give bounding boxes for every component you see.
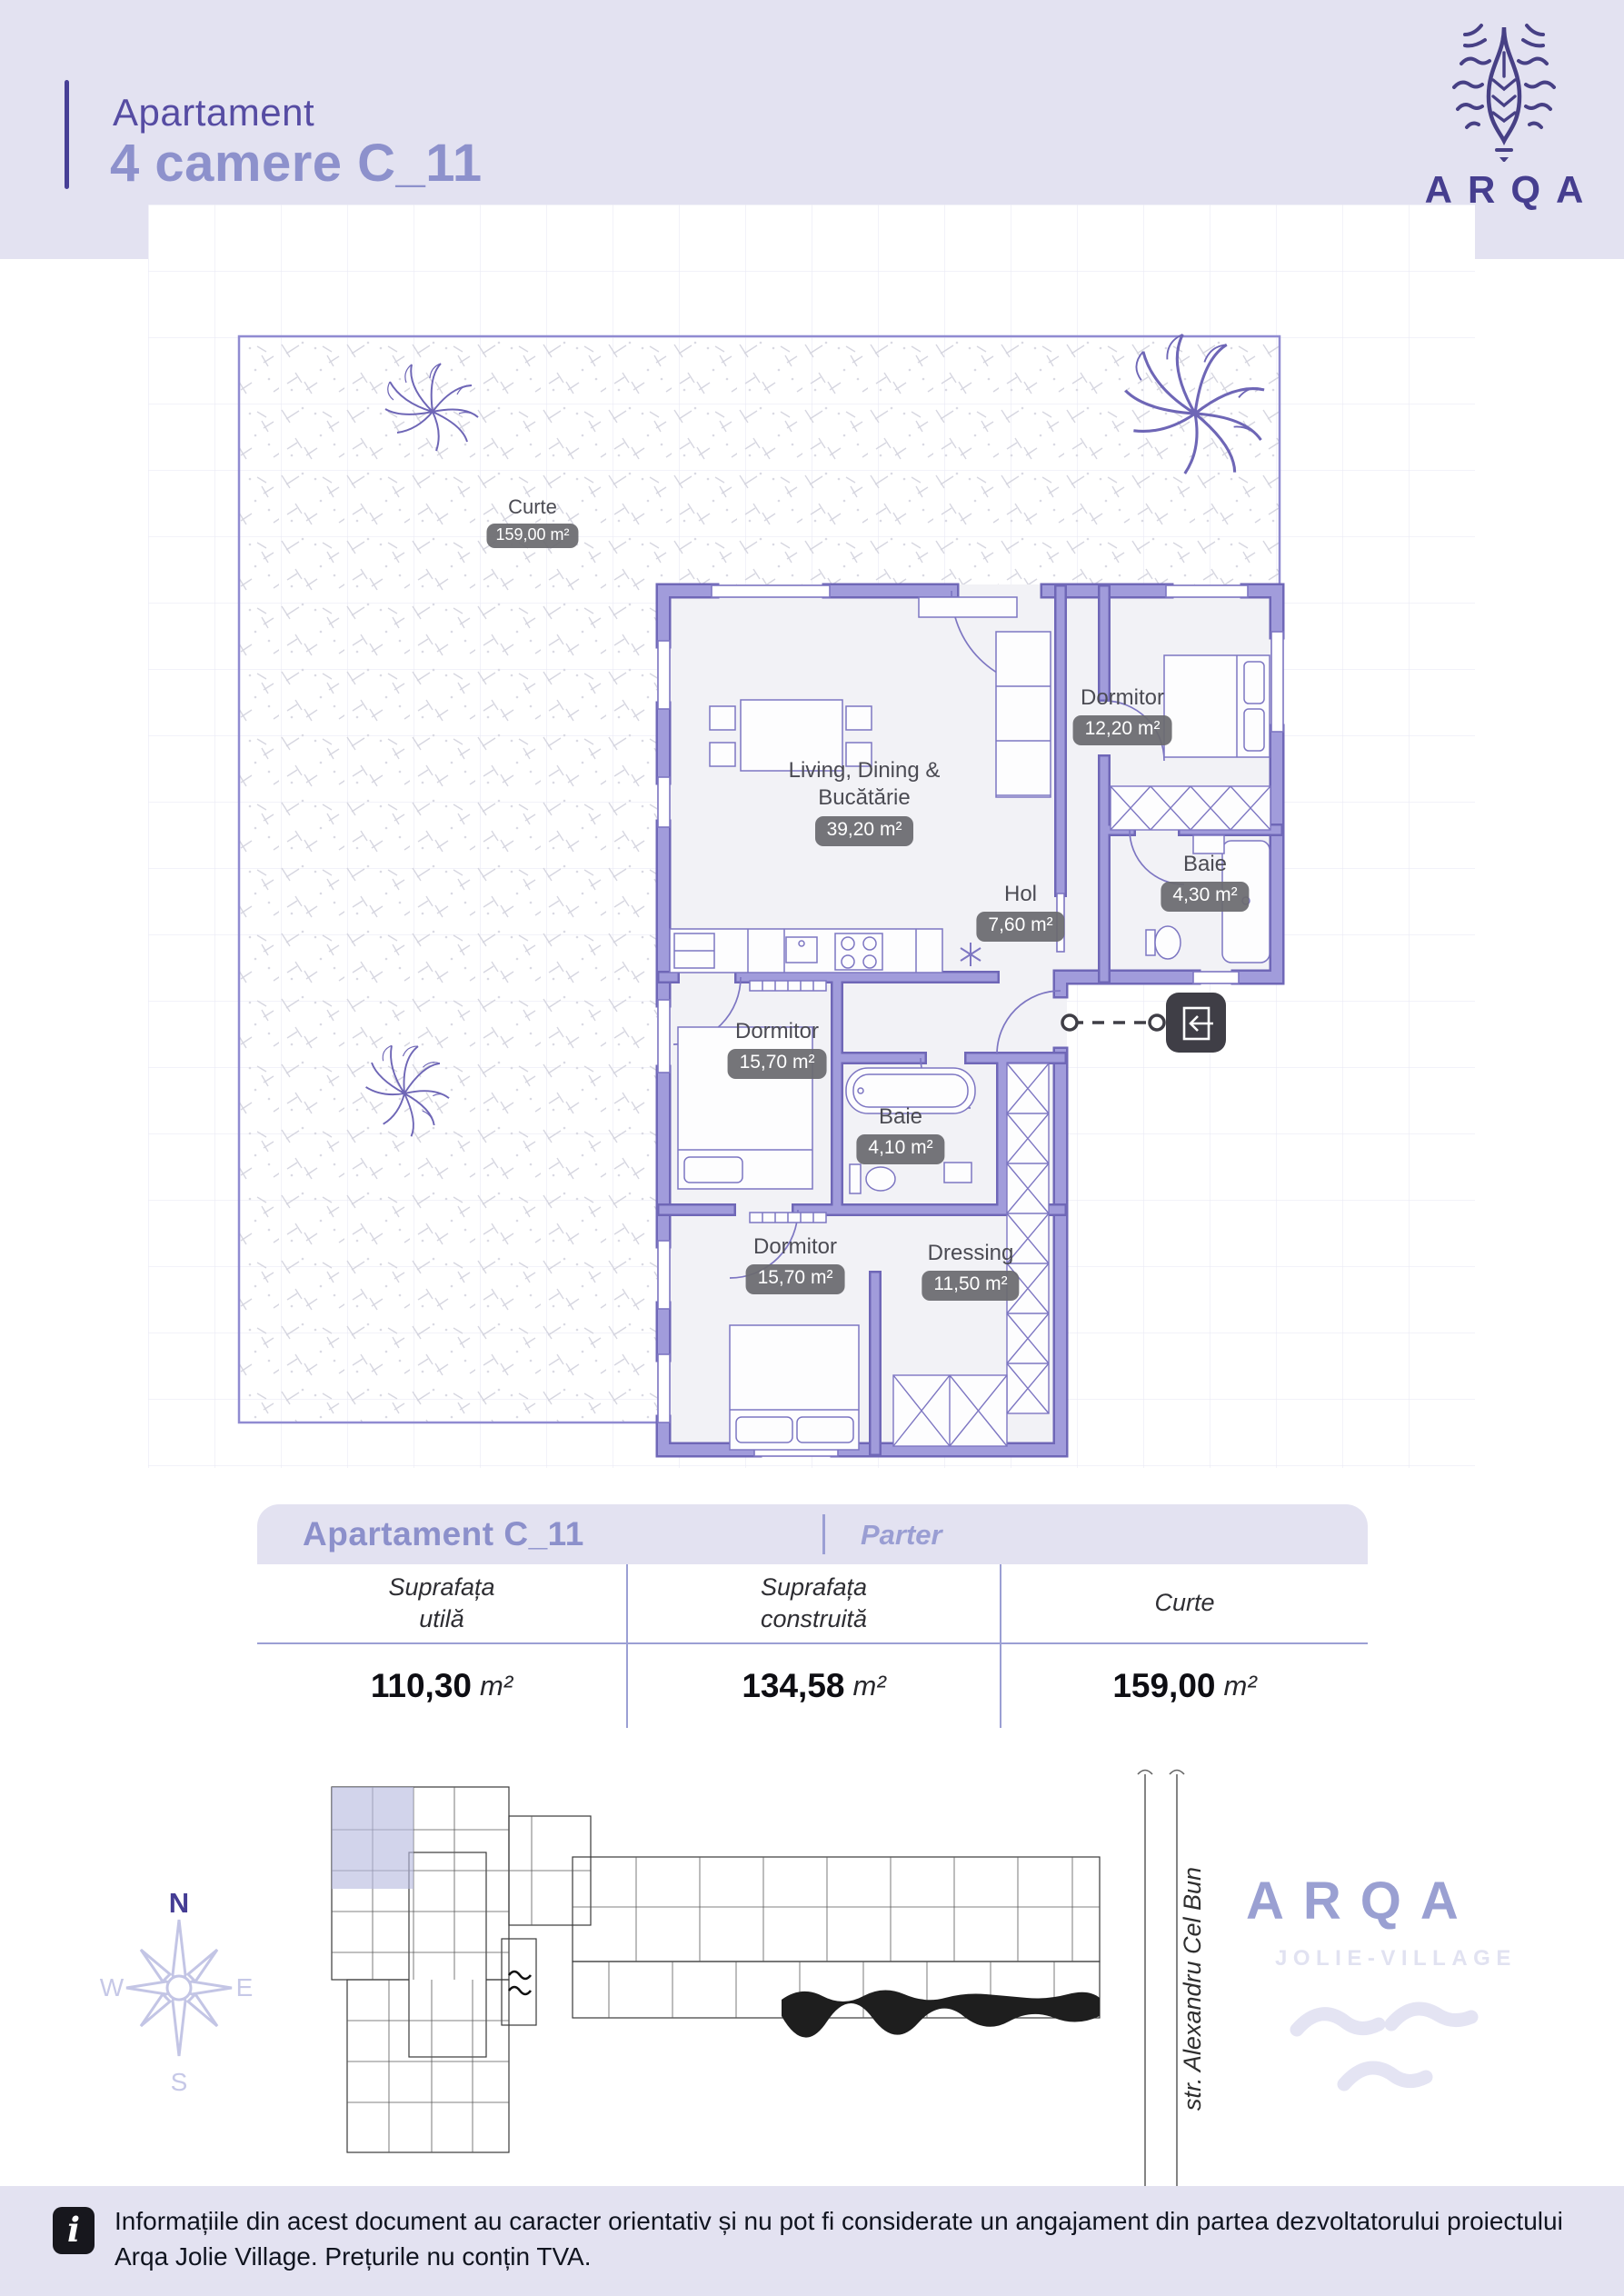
compass-rose: N E S W: [95, 1874, 263, 2101]
summary-grid: Suprafața utilă Suprafața construită Cur…: [257, 1564, 1368, 1728]
room-label-dormitor-1: Dormitor 12,20 m²: [1073, 685, 1172, 745]
site-buildings: [332, 1787, 1100, 2152]
arqa-logo: ARQA: [1400, 16, 1609, 212]
area-badge: 15,70 m²: [746, 1264, 845, 1294]
area-badge: 159,00 m²: [486, 524, 578, 548]
area-badge: 15,70 m²: [728, 1049, 827, 1079]
area-badge: 4,10 m²: [856, 1134, 944, 1164]
room-label-living: Living, Dining & Bucătărie 39,20 m²: [746, 757, 982, 846]
title-accent-bar: [65, 80, 69, 189]
info-icon: i: [53, 2207, 95, 2254]
summary-banner: Apartament C_11 Parter: [257, 1504, 1368, 1564]
room-label-dormitor-2: Dormitor 15,70 m²: [728, 1019, 827, 1079]
street-lines: [1138, 1771, 1184, 2208]
summary-title: Apartament C_11: [303, 1515, 584, 1553]
arqa-emblem-icon: [1444, 16, 1564, 162]
summary-floor: Parter: [861, 1519, 942, 1552]
brand-name: ARQA: [1246, 1871, 1573, 1932]
arqa-jolie-village-logo: ARQA JOLIE-VILLAGE: [1246, 1871, 1573, 2116]
brand-waves-icon: [1284, 1993, 1484, 2111]
brochure-page: Apartament 4 camere C_11 ARQA: [0, 0, 1624, 2296]
site-pool-icon: [509, 1972, 531, 1994]
room-label-dormitor-3: Dormitor 15,70 m²: [746, 1234, 845, 1294]
column-value: 110,30m²: [257, 1642, 628, 1728]
room-label-baie-2: Baie 4,10 m²: [856, 1104, 944, 1164]
column-header: Suprafața utilă: [257, 1564, 628, 1642]
area-badge: 4,30 m²: [1161, 882, 1249, 912]
site-pool-waves: [782, 1990, 1100, 2037]
room-label-curte: Curte 159,00 m²: [486, 495, 578, 548]
compass-e: E: [236, 1973, 254, 2002]
room-label-hol: Hol 7,60 m²: [976, 882, 1064, 942]
summary-table: Apartament C_11 Parter Suprafața utilă S…: [257, 1504, 1368, 1728]
floor-plan-section: Curte 159,00 m² Living, Dining & Bucătăr…: [148, 205, 1475, 1468]
room-labels: Curte 159,00 m² Living, Dining & Bucătăr…: [148, 205, 1475, 1468]
disclaimer-text: Informațiile din acest document au carac…: [115, 2203, 1569, 2274]
column-header: Curte: [1001, 1564, 1368, 1642]
page-kicker: Apartament: [113, 91, 314, 135]
room-label-baie-1: Baie 4,30 m²: [1161, 852, 1249, 912]
site-unit-highlight: [332, 1787, 413, 1889]
area-badge: 7,60 m²: [976, 912, 1064, 942]
compass-s: S: [171, 2068, 188, 2096]
site-plan: str. Alexandru Cel Bun: [291, 1762, 1209, 2216]
room-label-dressing: Dressing 11,50 m²: [922, 1241, 1019, 1301]
area-badge: 39,20 m²: [815, 816, 914, 846]
area-badge: 11,50 m²: [922, 1271, 1019, 1301]
compass-n: N: [169, 1887, 189, 1919]
page-title: 4 camere C_11: [110, 133, 483, 194]
street-label: str. Alexandru Cel Bun: [1179, 1867, 1206, 2111]
compass-w: W: [100, 1973, 125, 2002]
column-value: 134,58m²: [628, 1642, 1001, 1728]
summary-divider: [822, 1514, 825, 1554]
brand-tagline: JOLIE-VILLAGE: [1275, 1946, 1573, 1972]
area-badge: 12,20 m²: [1073, 715, 1172, 745]
column-value: 159,00m²: [1001, 1642, 1368, 1728]
column-header: Suprafața construită: [628, 1564, 1001, 1642]
